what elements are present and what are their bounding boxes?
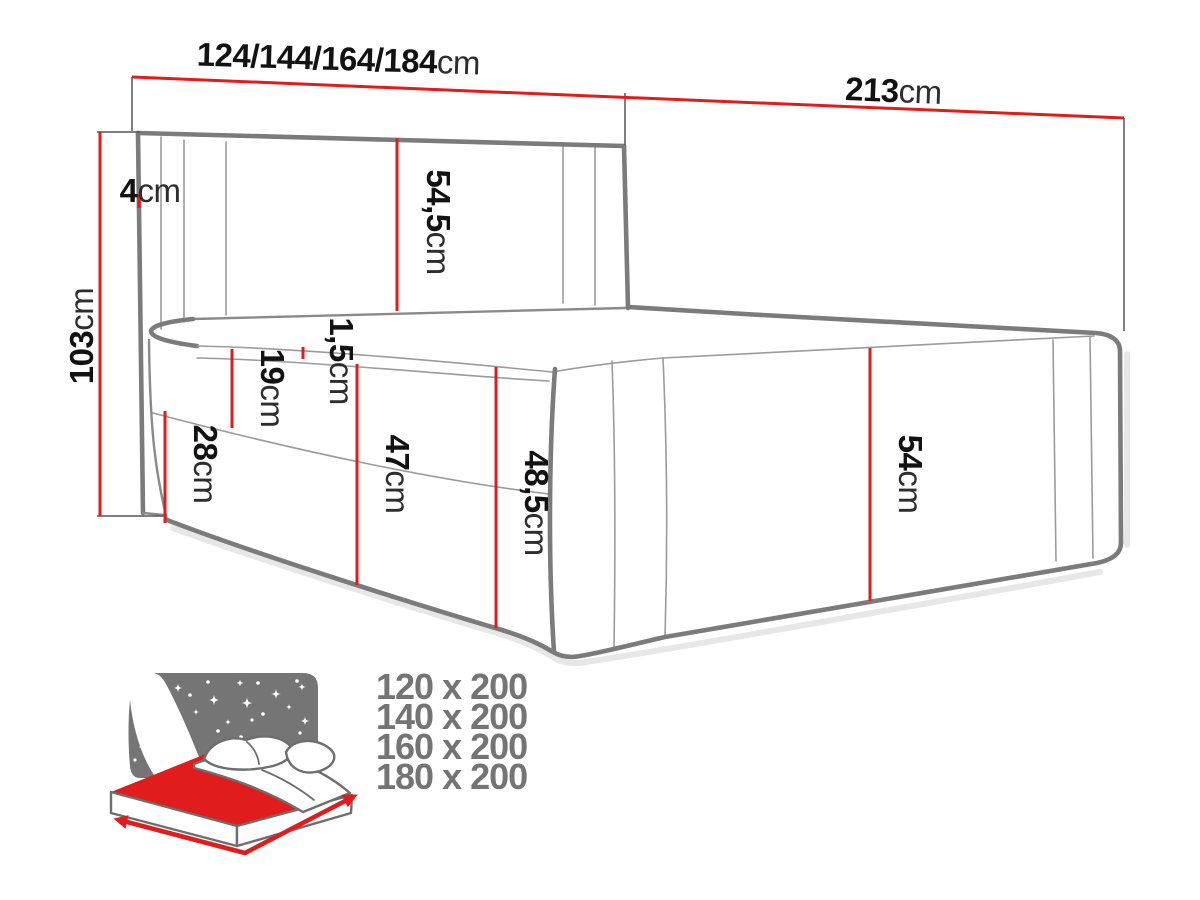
bed-base (149, 307, 1121, 657)
dim-line-top (132, 77, 1124, 118)
label-lip: 1,5cm (323, 317, 360, 404)
label-length: 213cm (844, 70, 942, 111)
label-base-side: 54cm (892, 435, 929, 514)
label-base-front: 47cm (379, 435, 416, 514)
extension-lines (97, 77, 1124, 516)
right-end-seam-1 (1053, 340, 1056, 561)
size-list: 120 x 200 140 x 200 160 x 200 180 x 200 (376, 666, 527, 797)
base-bottom-edge (167, 520, 1121, 657)
diagram-canvas: 124/144/164/184cm 213cm 103cm 4cm 54,5cm… (0, 0, 1200, 900)
mattress-back-edge (193, 308, 625, 319)
moon-sliver-shape (129, 700, 157, 778)
icon-arrowhead-left (113, 815, 128, 829)
label-upper-front: 19cm (254, 349, 291, 428)
corner-seam-1 (612, 361, 615, 647)
storage-bed-icon (111, 673, 358, 853)
headboard-top-edge (138, 133, 624, 146)
dimension-labels: 124/144/164/184cm 213cm 103cm 4cm 54,5cm… (63, 36, 942, 556)
right-end-seam-2 (1090, 337, 1093, 558)
mattress-left-nose (151, 319, 197, 346)
size-list-item: 180 x 200 (376, 756, 527, 797)
mattress (151, 308, 625, 372)
label-base-total: 48,5cm (518, 450, 555, 555)
base-far-top-edge (628, 307, 1121, 543)
headboard-right-edge (624, 146, 628, 308)
label-width: 124/144/164/184cm (196, 36, 480, 82)
base-top-edge-side (552, 336, 1094, 372)
label-headboard: 54,5cm (420, 169, 457, 274)
corner-seam-2 (663, 358, 667, 637)
bed-dimension-diagram: 124/144/164/184cm 213cm 103cm 4cm 54,5cm… (0, 0, 1200, 900)
dimension-lines (100, 77, 1124, 628)
pillow-right (286, 741, 334, 773)
headboard-foot-edge (143, 513, 164, 515)
label-height: 103cm (63, 288, 100, 385)
label-storage: 28cm (187, 425, 224, 504)
label-wing: 4cm (120, 172, 181, 209)
